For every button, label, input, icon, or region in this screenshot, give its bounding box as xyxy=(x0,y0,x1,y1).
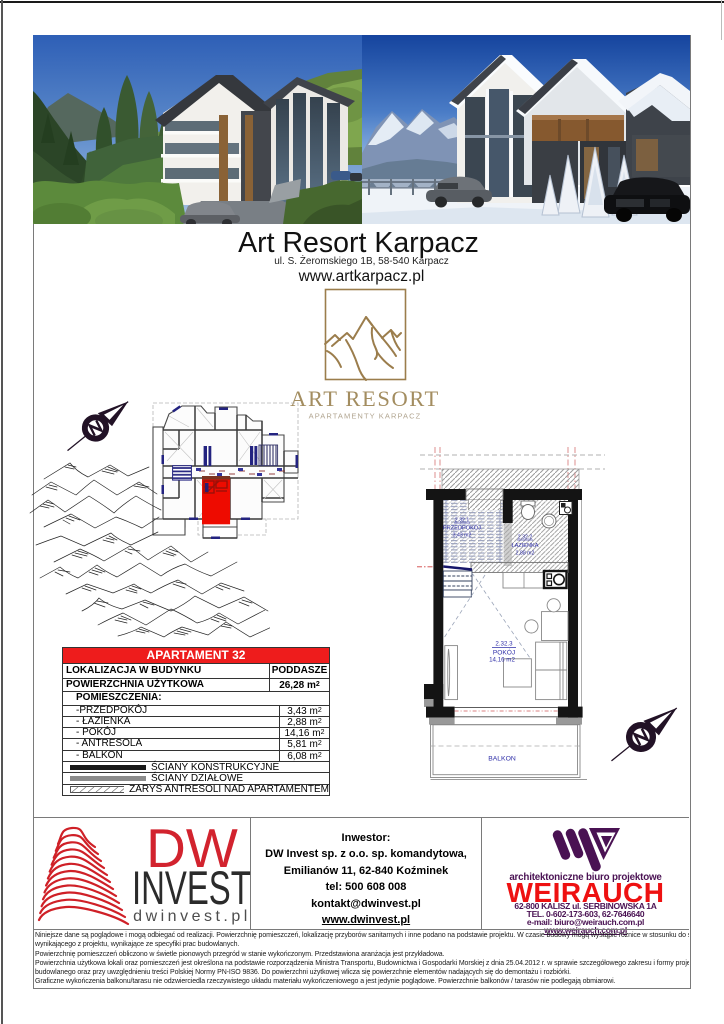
svg-text:2.32.1: 2.32.1 xyxy=(455,518,470,524)
svg-text:ŁAZIENKA: ŁAZIENKA xyxy=(511,543,538,549)
svg-text:14,16 m2: 14,16 m2 xyxy=(489,657,515,664)
svg-text:BALKON: BALKON xyxy=(488,756,516,763)
svg-text:POKÓJ: POKÓJ xyxy=(493,648,515,657)
svg-text:PRZEDPOKÓJ: PRZEDPOKÓJ xyxy=(443,525,481,532)
svg-text:ART RESORT: ART RESORT xyxy=(290,386,440,411)
svg-text:2.32.3: 2.32.3 xyxy=(495,641,513,648)
svg-text:3,43 m2: 3,43 m2 xyxy=(453,533,472,539)
svg-text:2.32.2: 2.32.2 xyxy=(518,535,533,541)
svg-text:APARTAMENTY KARPACZ: APARTAMENTY KARPACZ xyxy=(309,412,422,421)
svg-text:2,88 m2: 2,88 m2 xyxy=(516,551,535,557)
